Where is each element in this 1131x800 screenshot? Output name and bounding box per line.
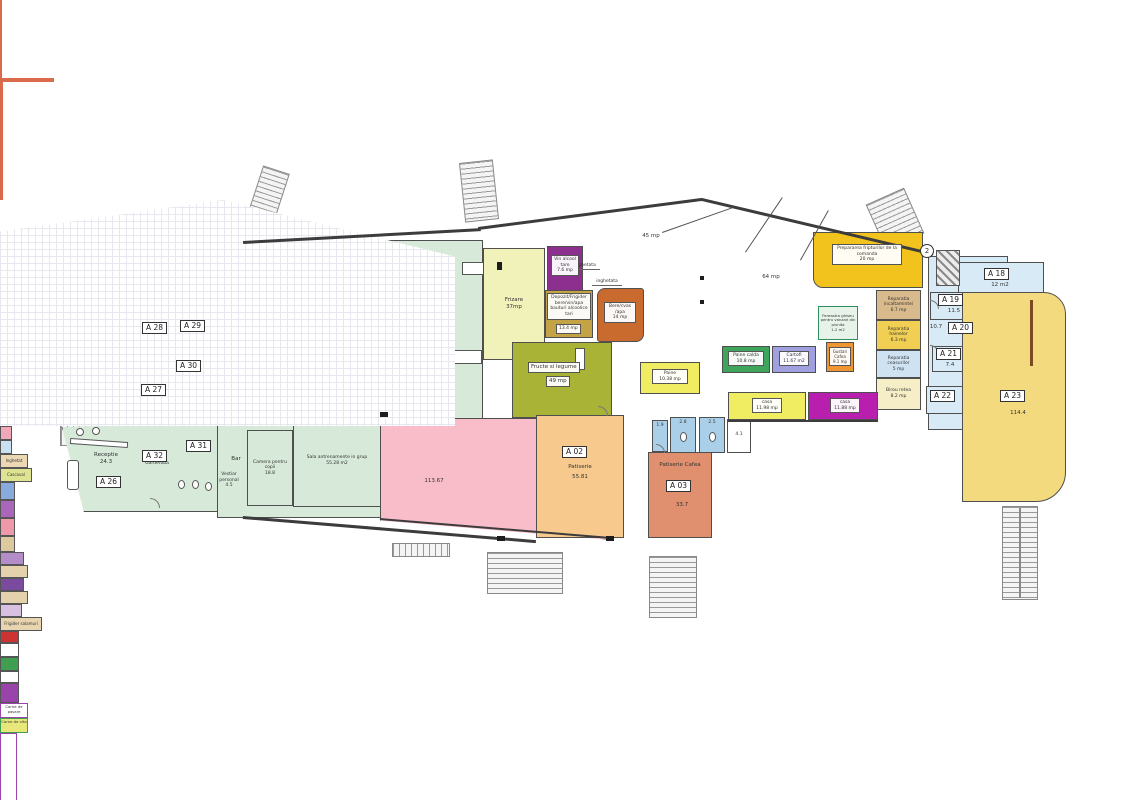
room-a32-code: A 32	[142, 450, 167, 462]
toilet-3	[205, 482, 212, 491]
depozit-label: Depozit/Frigider bere/vin/apa bauturi al…	[547, 293, 591, 320]
counter-cascaval: Cascaval	[0, 468, 32, 482]
room-a02-code: A 02	[562, 446, 587, 458]
casa-1-area: 11.98 mp	[756, 406, 778, 411]
wall-accent-2	[0, 138, 3, 200]
stairs-bottom-1	[487, 552, 563, 594]
cartofi-name: Cartofi	[786, 353, 801, 358]
bere-name: Bere/cvas /apa	[609, 304, 631, 315]
room-a30-code: A 30	[176, 360, 201, 372]
column-mark-2	[700, 300, 704, 304]
wc-2-area: 2.8	[671, 420, 695, 426]
peste-rack-white	[0, 643, 19, 657]
paine-1-label: Paine 10.38 mp	[652, 369, 688, 384]
paine-1-area: 10.38 mp	[659, 377, 681, 382]
rep-ceasuri-label: Reparatia ceasurilor	[879, 356, 918, 367]
leader-lactate	[662, 207, 733, 233]
stairs-bottom-2	[649, 556, 697, 618]
casa-2-label: casa 11.88 mp	[830, 398, 860, 413]
preparare-name: Prepararea fripturilor de la comanda	[837, 246, 897, 257]
room-a20-area: 10.7	[926, 324, 946, 331]
room-a18-area: 12 m2	[988, 282, 1012, 289]
wc-1-area: 1.9	[653, 423, 667, 429]
paine-1-name: Paine	[664, 371, 676, 376]
stool-2	[92, 427, 100, 435]
paine-2-area: 10.8 mp	[737, 359, 756, 364]
fixture-box-3	[0, 578, 24, 591]
room-birou: Birou retea8.2 mp	[876, 378, 921, 410]
wall-mark-3	[497, 536, 505, 541]
room-a22-code: A 22	[930, 390, 955, 402]
room-rep-incaltaminte: Reparatia incaltamintei6.7 mp	[876, 290, 921, 320]
vestiar-personal-area: 4.5	[225, 483, 232, 488]
cartofi-label: Cartofi 11.67 m2	[779, 351, 809, 366]
counter-cell-3	[0, 482, 15, 500]
fixture-box-4	[0, 591, 28, 604]
market-64-area: 64 mp	[756, 274, 786, 281]
wall-mark-2	[380, 412, 388, 417]
gustari-name: Gustari Cafea	[833, 349, 848, 359]
room-fereastra: Fereastra ghiseu pentru vanzari din pivn…	[818, 306, 858, 340]
a02-area: 55.81	[564, 474, 596, 481]
room-a29-code: A 29	[180, 320, 205, 332]
wall-mark-4	[606, 536, 614, 541]
a03-area: 33.7	[668, 502, 696, 509]
wall-south-center	[728, 420, 878, 422]
gym-equipment-bar	[0, 78, 54, 82]
fitness-pink-area: 113.67	[416, 478, 452, 485]
peste-rack-red	[0, 631, 19, 643]
camera-copii-area: 18.8	[265, 471, 275, 477]
room-a23-area: 114.4	[1004, 410, 1032, 417]
room-sala-grup: Sala antrenamente in grup55.28 m2	[293, 415, 381, 507]
wc-3-area: 2.5	[700, 420, 724, 426]
fereastra-label: Fereastra ghiseu pentru vanzari din pivn…	[820, 314, 856, 328]
a23-fixture	[1030, 300, 1033, 366]
vin-name: Vin alcool tare	[554, 257, 576, 268]
preparare-area: 20 mp	[860, 257, 874, 262]
casa-1-name: casa	[762, 400, 772, 405]
peste-rack-purple	[0, 683, 19, 703]
room-a31-code: A 31	[186, 440, 211, 452]
room-a03-code: A 03	[666, 480, 691, 492]
toilet-wc3	[709, 432, 716, 442]
bar-label: Bar	[226, 456, 246, 463]
birou-area: 8.2 mp	[891, 394, 907, 400]
wall-mark-1	[497, 262, 502, 270]
sala-grup-area: 55.28 m2	[326, 461, 348, 467]
counter-inghetat: Inghetat	[0, 454, 28, 468]
paine-2-label: Paine calda 10.8 mp	[728, 351, 764, 366]
rep-ceasuri-area: 5 mp	[893, 367, 905, 373]
room-a19-code: A 19	[938, 294, 963, 306]
vin-area: 7.6 mp	[557, 268, 573, 273]
toilet-wc2	[680, 432, 687, 442]
preparare-label: Prepararea fripturilor de la comanda 20 …	[832, 244, 902, 265]
vin-label: Vin alcool tare 7.6 mp	[551, 255, 579, 276]
rep-haine-area: 6.3 mp	[891, 338, 907, 344]
inghetata-note-2: inghetata	[592, 279, 622, 286]
cartofi-area: 11.67 m2	[783, 359, 805, 364]
wall-market-top-left	[478, 198, 703, 230]
depozit-area: 13.4 mp	[556, 324, 581, 334]
wall-accent-1	[0, 82, 3, 138]
carne-vita-box: Carne de vita	[0, 718, 28, 733]
casa-2-name: casa	[840, 400, 850, 405]
fixture-box-1	[0, 552, 24, 565]
rep-incaltaminte-area: 6.7 mp	[891, 308, 907, 314]
rep-incaltaminte-label: Reparatia incaltamintei	[879, 297, 918, 308]
counter-cell-1	[0, 426, 12, 440]
vestiar-personal-label: Vestiar personal 4.5	[214, 472, 244, 489]
gustari-label: Gustari Cafea 9.1 mp	[829, 347, 851, 366]
room-a18-code: A 18	[984, 268, 1009, 280]
gym-fixture-2	[452, 350, 482, 364]
toilet-2	[192, 480, 199, 489]
fixture-box-5	[0, 604, 22, 617]
fructe-label: Fructe si legume	[528, 362, 580, 373]
room-a21-code: A 21	[936, 348, 961, 360]
frizare-label: Frizare	[505, 297, 523, 304]
fructe-area: 49 mp	[546, 376, 570, 387]
floor-plan: 9.6 A 28 panouri electrice pentru tot pa…	[0, 0, 1131, 800]
carne-pasare-box: Carne de pasare	[0, 703, 28, 718]
toilet-1	[178, 480, 185, 489]
bere-area: 14 mp	[613, 315, 627, 320]
vestiar-personal-name: Vestiar personal	[219, 472, 238, 483]
room-wc-2: 2.8	[670, 417, 696, 453]
counter-cell-2	[0, 440, 12, 454]
riser-pipe	[0, 0, 2, 78]
counter-cell-5	[0, 518, 15, 536]
receptie-name: Receptie	[94, 452, 118, 458]
peste-rack-green	[0, 657, 19, 671]
stool-1	[76, 428, 84, 436]
room-a23-code: A 23	[1000, 390, 1025, 402]
market-45-area: 45 mp	[636, 233, 666, 240]
room-a21-area: 7.4	[940, 362, 960, 369]
a03-name: Patiserie Cafea	[656, 462, 704, 469]
gustari-area: 9.1 mp	[833, 359, 847, 364]
frigider-rack	[0, 733, 17, 800]
casa-2-area: 11.88 mp	[834, 406, 856, 411]
shaft-hatch	[936, 250, 960, 286]
room-a28-code: A 28	[142, 322, 167, 334]
room-a27-code: A 27	[141, 384, 166, 396]
bere-label: Bere/cvas /apa 14 mp	[604, 302, 636, 323]
peste-rack-white-2	[0, 671, 19, 683]
frizare-area: 37mp	[506, 304, 522, 311]
wc-hol-area: 4.1	[728, 432, 750, 438]
room-a26-code: A 26	[96, 476, 121, 488]
counter-cell-4	[0, 500, 15, 518]
casa-1-label: casa 11.98 mp	[752, 398, 782, 413]
receptie-label: Receptie 24.3	[86, 452, 126, 465]
camera-copii-label: Camera pentru copii	[250, 460, 290, 471]
fixture-box-2	[0, 565, 28, 578]
a02-name: Patiserie	[556, 464, 604, 471]
stairs-top-center	[459, 159, 499, 222]
receptie-area: 24.3	[100, 459, 112, 465]
stairs-bottom-3	[392, 543, 450, 557]
room-rep-ceasuri: Reparatia ceasurilor5 mp	[876, 350, 921, 378]
leader-peste	[745, 197, 783, 252]
room-camera-copii: Camera pentru copii18.8	[247, 430, 293, 506]
counter-cell-6	[0, 536, 15, 552]
frigider-salamuri: Frigider salamuri	[0, 617, 42, 631]
room-a20-code: A 20	[948, 322, 973, 334]
column-mark-1	[700, 276, 704, 280]
room-a19-area: 11.5	[944, 308, 964, 315]
paine-2-name: Paine calda	[733, 353, 759, 358]
rep-haine-label: Reparatia hainelor	[879, 327, 918, 338]
stair-rail	[1019, 508, 1021, 598]
room-rep-haine: Reparatia hainelor6.3 mp	[876, 320, 921, 350]
room-wc-3: 2.5	[699, 417, 725, 453]
fereastra-area: 1-2 m2	[831, 328, 845, 333]
sofa	[67, 460, 79, 490]
room-wc-hol: 4.1	[727, 419, 751, 453]
axis-marker-2: 2	[920, 244, 934, 258]
